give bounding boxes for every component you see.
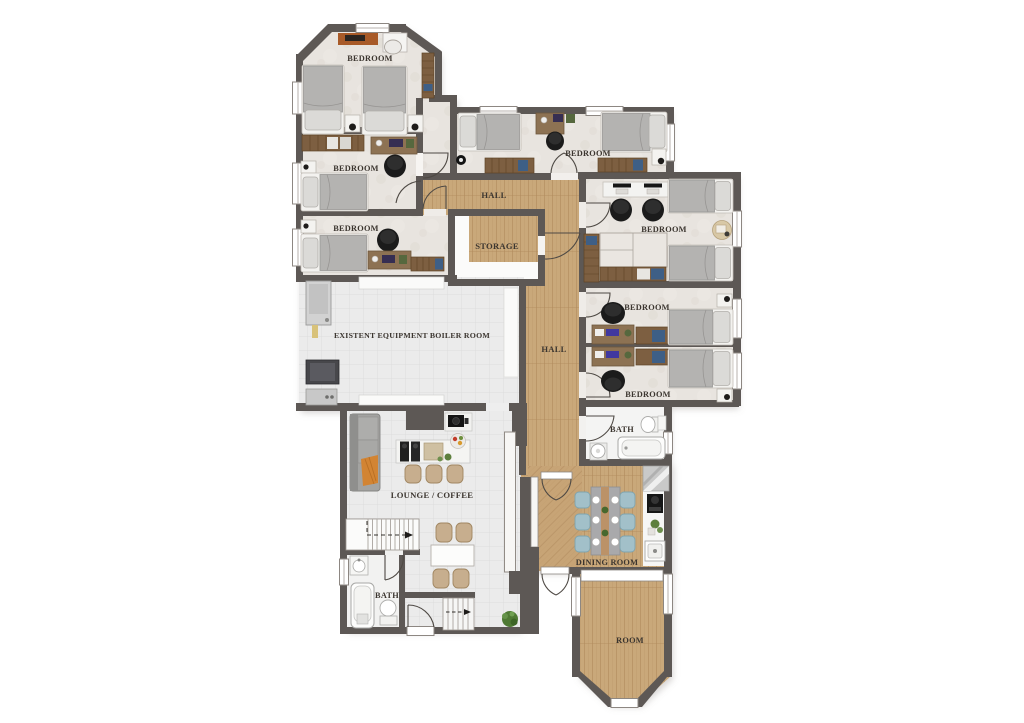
svg-text:BATH: BATH — [375, 591, 399, 600]
svg-text:BEDROOM: BEDROOM — [565, 149, 611, 158]
svg-text:BEDROOM: BEDROOM — [333, 224, 379, 233]
svg-text:HALL: HALL — [481, 190, 506, 200]
svg-text:BEDROOM: BEDROOM — [625, 390, 671, 399]
svg-text:BEDROOM: BEDROOM — [333, 164, 379, 173]
svg-text:BEDROOM: BEDROOM — [347, 54, 393, 63]
svg-text:LOUNGE / COFFEE: LOUNGE / COFFEE — [391, 490, 474, 500]
svg-text:BATH: BATH — [610, 425, 634, 434]
svg-text:ROOM: ROOM — [616, 636, 644, 645]
svg-text:HALL: HALL — [541, 344, 566, 354]
svg-text:EXISTENT EQUIPMENT BOILER ROOM: EXISTENT EQUIPMENT BOILER ROOM — [334, 331, 490, 340]
svg-text:STORAGE: STORAGE — [475, 241, 519, 251]
svg-text:BEDROOM: BEDROOM — [624, 303, 670, 312]
svg-text:BEDROOM: BEDROOM — [641, 225, 687, 234]
svg-text:DINING ROOM: DINING ROOM — [576, 558, 638, 567]
